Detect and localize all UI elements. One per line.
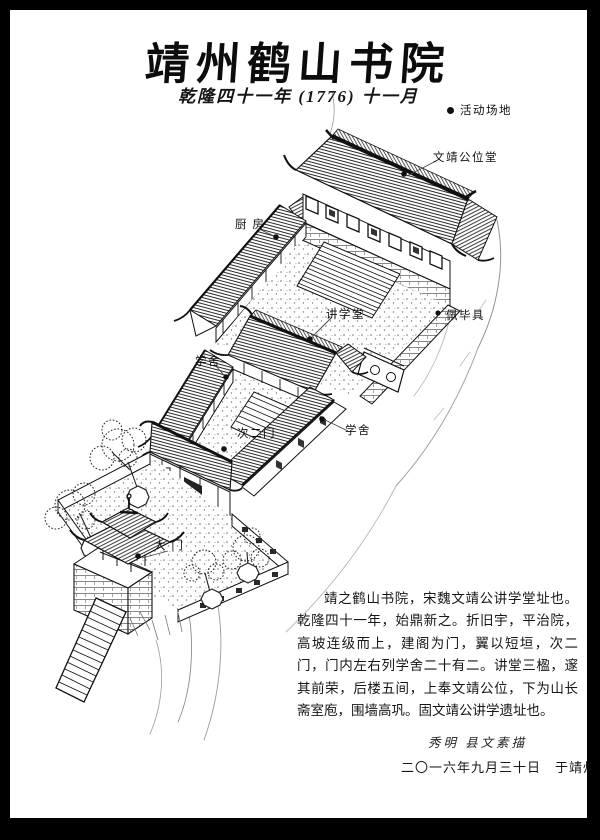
label-second-gate: 次二门 — [237, 425, 276, 441]
label-peibiju: 佩毕具 — [446, 307, 485, 323]
activity-ground-text: 活动场地 — [460, 102, 512, 118]
label-lecture-hall: 讲学堂 — [326, 306, 365, 322]
signature-date: 二〇一六年九月三十日 于靖州 — [401, 757, 587, 776]
photo-black-frame: { "page": { "title": "靖州鹤山书院", "subtitle… — [0, 0, 600, 840]
label-main-gate: 大 门 — [154, 537, 184, 553]
entrance-stairs — [56, 598, 182, 702]
signature-artist: 秀明 县文素描 — [428, 732, 527, 751]
activity-bullet-icon — [447, 107, 454, 114]
label-dorm-left: 学舍 — [195, 353, 221, 369]
label-kitchen: 厨 房 — [235, 216, 265, 232]
label-activity-ground: 活动场地 — [447, 102, 512, 118]
drawing-page: 靖州鹤山书院 乾隆四十一年 (1776) 十一月 活动场地 文靖公位堂 厨 房 … — [10, 10, 587, 818]
label-wenjing-hall: 文靖公位堂 — [433, 149, 498, 165]
description-paragraph: 靖之鹤山书院，宋魏文靖公讲学堂址也。乾隆四十一年，始鼎新之。折旧宇，平治院，高坡… — [297, 588, 578, 722]
label-dorm-right: 学舍 — [345, 422, 371, 438]
